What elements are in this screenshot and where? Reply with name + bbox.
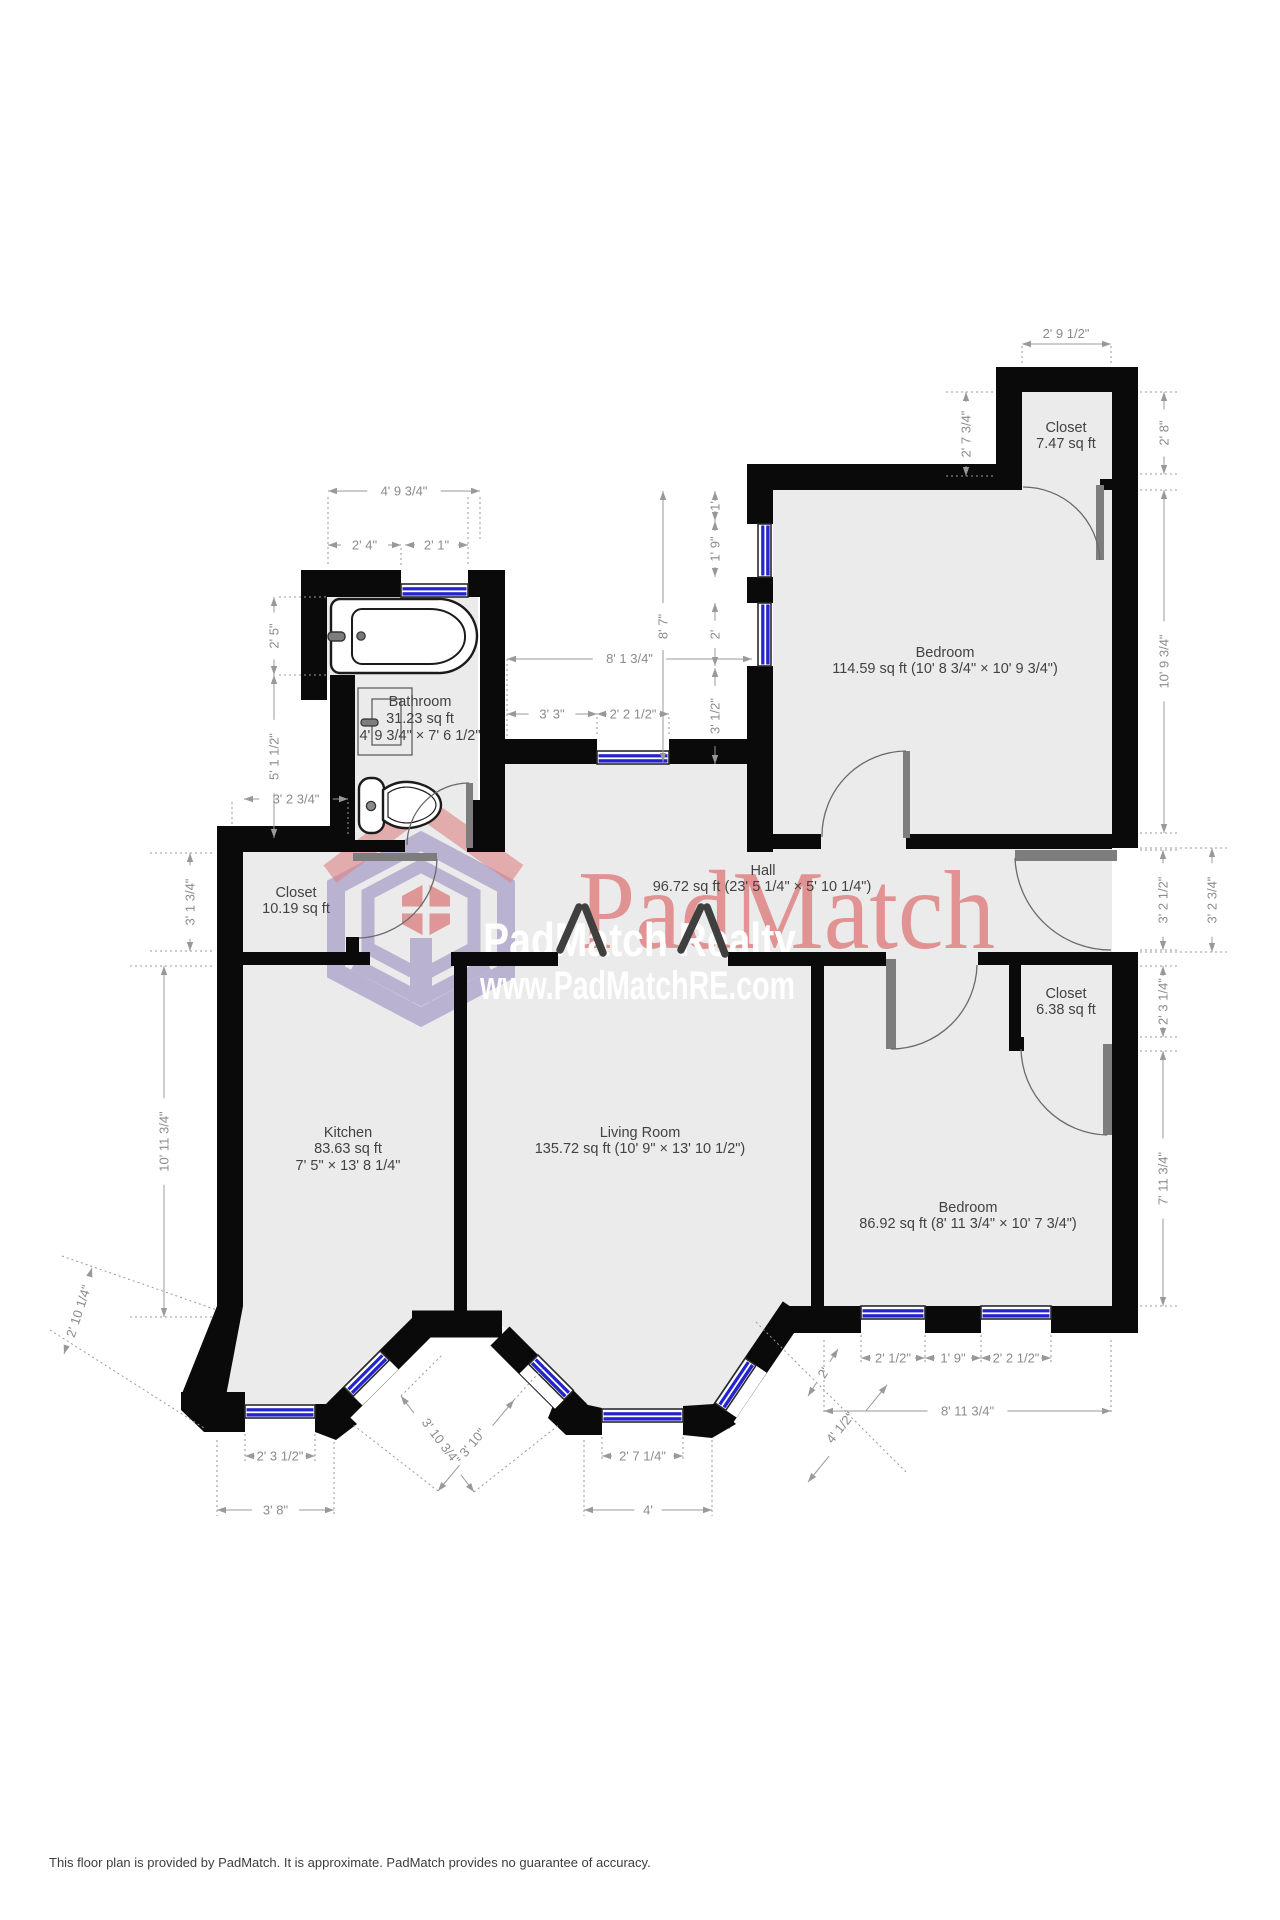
svg-text:1': 1'	[708, 501, 723, 511]
svg-text:5' 1 1/2": 5' 1 1/2"	[267, 733, 282, 780]
svg-text:7.47 sq ft: 7.47 sq ft	[1036, 436, 1096, 452]
svg-text:8' 7": 8' 7"	[656, 614, 671, 640]
svg-text:2' 3 1/4": 2' 3 1/4"	[1156, 978, 1171, 1025]
svg-text:96.72 sq ft (23' 5 1/4" × 5' 1: 96.72 sq ft (23' 5 1/4" × 5' 10 1/4")	[653, 879, 872, 895]
svg-text:This floor plan is provided by: This floor plan is provided by PadMatch.…	[49, 1855, 651, 1870]
svg-text:3' 8": 3' 8"	[263, 1503, 289, 1518]
svg-text:3' 1 3/4": 3' 1 3/4"	[183, 878, 198, 925]
svg-text:Closet: Closet	[275, 885, 316, 901]
svg-text:2' 7 1/4": 2' 7 1/4"	[619, 1449, 666, 1464]
svg-text:135.72 sq ft (10' 9" × 13' 10: 135.72 sq ft (10' 9" × 13' 10 1/2")	[535, 1141, 746, 1157]
svg-text:Bedroom: Bedroom	[916, 645, 975, 661]
svg-text:8' 11 3/4": 8' 11 3/4"	[941, 1404, 995, 1419]
svg-text:7' 11 3/4": 7' 11 3/4"	[1156, 1152, 1171, 1206]
svg-text:2' 2 1/2": 2' 2 1/2"	[610, 707, 657, 722]
svg-text:Closet: Closet	[1045, 986, 1086, 1002]
svg-text:Closet: Closet	[1045, 420, 1086, 436]
svg-text:83.63 sq ft: 83.63 sq ft	[314, 1141, 382, 1157]
svg-text:2' 3 1/2": 2' 3 1/2"	[257, 1449, 304, 1464]
svg-text:2' 1/2": 2' 1/2"	[875, 1351, 911, 1366]
svg-text:7' 5" × 13' 8 1/4": 7' 5" × 13' 8 1/4"	[296, 1158, 401, 1174]
svg-text:8' 1 3/4": 8' 1 3/4"	[606, 651, 653, 666]
svg-text:2' 2 1/2": 2' 2 1/2"	[993, 1351, 1040, 1366]
svg-text:2' 1": 2' 1"	[424, 538, 450, 553]
svg-text:1' 9": 1' 9"	[940, 1351, 966, 1366]
svg-text:Hall: Hall	[751, 863, 776, 879]
svg-text:2' 7 3/4": 2' 7 3/4"	[959, 410, 974, 457]
svg-text:2' 8": 2' 8"	[1157, 420, 1172, 446]
svg-text:86.92 sq ft (8' 11 3/4" × 10': 86.92 sq ft (8' 11 3/4" × 10' 7 3/4")	[859, 1216, 1077, 1232]
svg-text:4' 9 3/4" × 7' 6 1/2": 4' 9 3/4" × 7' 6 1/2"	[359, 728, 480, 744]
svg-text:10' 11 3/4": 10' 11 3/4"	[157, 1111, 172, 1172]
svg-text:Bedroom: Bedroom	[939, 1200, 998, 1216]
svg-text:10' 9 3/4": 10' 9 3/4"	[1157, 634, 1172, 688]
svg-text:3' 2 3/4": 3' 2 3/4"	[1205, 876, 1220, 923]
svg-text:Living Room: Living Room	[600, 1125, 681, 1141]
svg-text:114.59 sq ft (10' 8 3/4" × 10': 114.59 sq ft (10' 8 3/4" × 10' 9 3/4")	[832, 661, 1058, 677]
svg-text:Bathroom: Bathroom	[389, 694, 452, 710]
svg-text:4': 4'	[643, 1503, 653, 1518]
svg-text:3' 3": 3' 3"	[539, 707, 565, 722]
svg-text:2' 4": 2' 4"	[352, 538, 378, 553]
svg-text:3' 2 1/2": 3' 2 1/2"	[1156, 876, 1171, 923]
svg-text:31.23 sq ft: 31.23 sq ft	[386, 711, 454, 727]
svg-text:2' 5": 2' 5"	[267, 623, 282, 649]
svg-text:2' 9 1/2": 2' 9 1/2"	[1043, 326, 1090, 341]
svg-text:2': 2'	[708, 630, 723, 640]
svg-text:6.38 sq ft: 6.38 sq ft	[1036, 1002, 1096, 1018]
svg-text:1' 9": 1' 9"	[708, 536, 723, 562]
svg-text:3' 1/2": 3' 1/2"	[708, 698, 723, 734]
svg-text:Kitchen: Kitchen	[324, 1125, 372, 1141]
svg-text:10.19 sq ft: 10.19 sq ft	[262, 901, 330, 917]
svg-text:www.PadMatchRE.com: www.PadMatchRE.com	[479, 964, 795, 1008]
svg-text:4' 9 3/4": 4' 9 3/4"	[381, 484, 428, 499]
svg-text:3' 2 3/4": 3' 2 3/4"	[273, 792, 320, 807]
